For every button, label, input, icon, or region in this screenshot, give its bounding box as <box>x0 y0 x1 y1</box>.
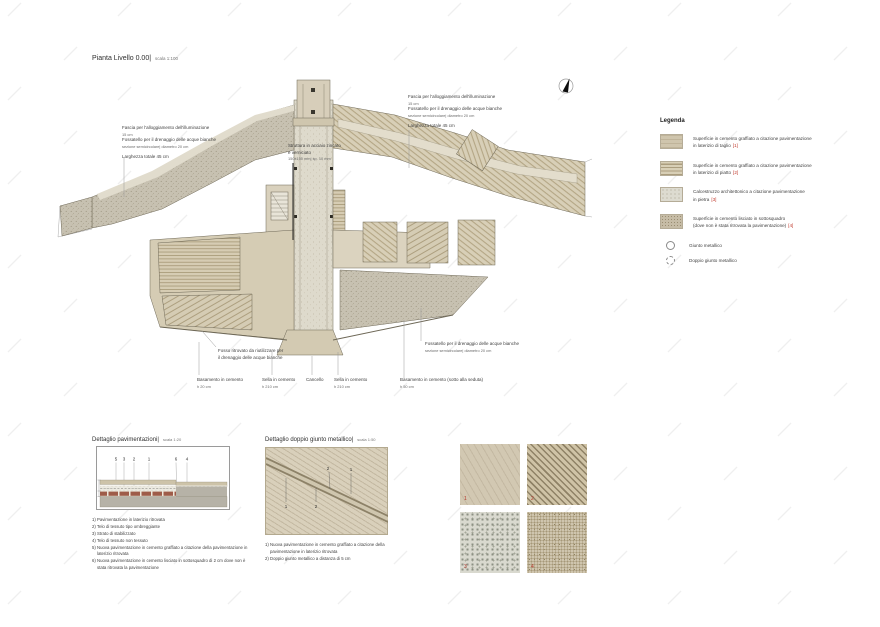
plan-label-text: Basamento in cemento <box>197 377 259 384</box>
legend: Legenda Superficie in cemento graffiato … <box>660 118 870 271</box>
detail-title-scale: scala 1:20 <box>163 437 181 442</box>
annotation-line: 150x150 mm| sp. 10 mm <box>288 156 360 162</box>
legend-item-text: Giunto metallico <box>689 242 722 249</box>
doppio-giunto-metallico-icon <box>666 256 675 265</box>
annotation-struttura: Struttura in acciaio zincato e verniciat… <box>288 143 360 162</box>
annotation-fascia-right: Fascia per l'alloggiamento dell'illumina… <box>408 94 533 130</box>
legend-item-text: in laterizio di taglio <box>693 143 731 148</box>
plan-label-cancello: Cancello <box>306 377 336 384</box>
annotation-line: Larghezza totale 45 cm <box>122 154 247 161</box>
legend-swatch-laterizio-taglio <box>660 134 683 149</box>
detail-giunto-drawing: 2 1 1 2 <box>265 447 388 535</box>
detail-pavimentazioni-title: Dettaglio pavimentazioni|scala 1:20 <box>92 428 181 446</box>
page-title-scale: scala 1:100 <box>155 56 178 61</box>
detail-giunto-title: Dettaglio doppio giunto metallico|scala … <box>265 428 376 446</box>
legend-item-ref: [1] <box>733 143 738 148</box>
giunto-callout: 2 <box>315 504 318 509</box>
legend-item-text: in laterizio di piatto <box>693 170 731 175</box>
legend-item-text: Doppio giunto metallico <box>689 257 737 264</box>
sample-number: 3 <box>464 564 467 570</box>
sample-number: 1 <box>464 496 467 502</box>
plan-patch-3 <box>458 220 495 265</box>
plan-patch-1 <box>363 222 397 262</box>
legend-swatch-sottosquadro <box>660 214 683 229</box>
detail-title-text: Dettaglio doppio giunto metallico| <box>265 437 353 443</box>
plan-label-value: h 20 cm <box>197 384 259 390</box>
plan-label-text: Cancello <box>306 377 336 384</box>
detail-title-text: Dettaglio pavimentazioni| <box>92 437 159 443</box>
note-line: 3) Strato di stabilizzato <box>92 531 252 538</box>
pav-callout: 3 <box>123 457 126 462</box>
legend-title: Legenda <box>660 118 870 124</box>
annotation-line: sezione semicircolare| diametro 20 cm <box>425 348 555 354</box>
legend-item-ref: [3] <box>711 197 716 202</box>
plan-label-basamento-seduta: Basamento in cemento (sotto alla seduta)… <box>400 377 515 390</box>
sample-pietra: 3 <box>460 512 520 573</box>
giunto-callout: 1 <box>350 467 353 472</box>
note-line: 1) Pavimentazione in laterizio ritrovata <box>92 517 252 524</box>
legend-item-doppio-giunto: Doppio giunto metallico <box>660 256 870 265</box>
legend-item-text: (dove non è stata ritrovata la pavimenta… <box>693 223 786 228</box>
giunto-callout: 2 <box>327 466 330 471</box>
pav-callout: 5 <box>115 457 118 462</box>
note-line: 6) Nuova pavimentazione in cemento lisci… <box>92 558 252 572</box>
legend-item-laterizio-taglio: Superficie in cemento graffiato a citazi… <box>660 134 870 150</box>
annotation-fosso: Fosso ritrovato da riutilizzare per il d… <box>218 348 308 361</box>
sample-laterizio-piatto: 2 <box>527 444 587 505</box>
legend-item-laterizio-piatto: Superficie in cemento graffiato a citazi… <box>660 161 870 177</box>
note-line: 2) Telo di tessuto tipo ombreggiante <box>92 524 252 531</box>
detail-giunto-notes: 1) Nuova pavimentazione in cemento graff… <box>265 542 403 563</box>
plan-label-value: h 210 cm <box>262 384 304 390</box>
legend-swatch-laterizio-piatto <box>660 161 683 176</box>
annotation-line: il drenaggio delle acque bianche <box>218 355 308 362</box>
annotation-fossatello-sud: Fossatello per il drenaggio delle acque … <box>425 341 555 353</box>
plan-label-text: Basamento in cemento (sotto alla seduta) <box>400 377 515 384</box>
pav-callout: 6 <box>175 457 178 462</box>
giunto-metallico-icon <box>666 241 675 250</box>
plan-label-value: h 210 cm <box>334 384 376 390</box>
legend-item-ref: [4] <box>788 223 793 228</box>
plan-label-basamento: Basamento in cemento h 20 cm <box>197 377 259 390</box>
plan-patch-2 <box>407 222 448 263</box>
sample-number: 4 <box>531 564 534 570</box>
material-samples: 1 2 3 4 <box>460 444 587 573</box>
detail-title-scale: scala 1:50 <box>357 437 375 442</box>
drawing-sheet: Pianta Livello 0.00|scala 1:100 Fascia p… <box>0 0 880 627</box>
note-line: 5) Nuova pavimentazione in cemento graff… <box>92 545 252 559</box>
legend-item-ref: [2] <box>733 170 738 175</box>
plan-label-text: Sella in cemento <box>334 377 376 384</box>
note-line: 2) Doppio giunto metallico a distanza di… <box>265 556 403 563</box>
plan-label-sella-2: Sella in cemento h 210 cm <box>334 377 376 390</box>
legend-item-text: in pietra <box>693 197 709 202</box>
plan-label-text: Sella in cemento <box>262 377 304 384</box>
legend-swatch-pietra <box>660 187 683 202</box>
plan-label-sella-1: Sella in cemento h 210 cm <box>262 377 304 390</box>
sample-number: 2 <box>531 496 534 502</box>
legend-item-text: Superficie in cemento graffiato a citazi… <box>693 135 812 142</box>
sample-sottosquadro: 4 <box>527 512 587 573</box>
pav-callout: 1 <box>148 457 151 462</box>
detail-pavimentazioni-drawing: 5 3 2 1 6 4 <box>96 446 230 510</box>
legend-item-text: Superficie in cemento lisciato in sottos… <box>693 215 793 222</box>
page-title: Pianta Livello 0.00| <box>92 55 151 62</box>
sample-laterizio-taglio: 1 <box>460 444 520 505</box>
pav-callout: 4 <box>186 457 189 462</box>
plan-tower <box>297 80 330 122</box>
detail-pavimentazioni-notes: 1) Pavimentazione in laterizio ritrovata… <box>92 517 252 572</box>
north-arrow-icon <box>559 79 573 94</box>
note-line: 4) Telo di tessuto non tessuto <box>92 538 252 545</box>
sheet-title: Pianta Livello 0.00|scala 1:100 <box>92 47 178 65</box>
legend-item-giunto: Giunto metallico <box>660 241 870 250</box>
giunto-callout: 1 <box>285 504 288 509</box>
legend-item-text: Superficie in cemento graffiato a citazi… <box>693 162 812 169</box>
legend-item-text: Calcestruzzo architettonico a citazione … <box>693 188 805 195</box>
annotation-fascia-left: Fascia per l'alloggiamento dell'illumina… <box>122 125 247 161</box>
annotation-line: Larghezza totale 45 cm <box>408 123 533 130</box>
legend-item-sottosquadro: Superficie in cemento lisciato in sottos… <box>660 214 870 230</box>
legend-item-pietra: Calcestruzzo architettonico a citazione … <box>660 187 870 203</box>
pav-callout: 2 <box>133 457 136 462</box>
note-line: 1) Nuova pavimentazione in cemento graff… <box>265 542 403 556</box>
plan-label-value: h 50 cm <box>400 384 515 390</box>
